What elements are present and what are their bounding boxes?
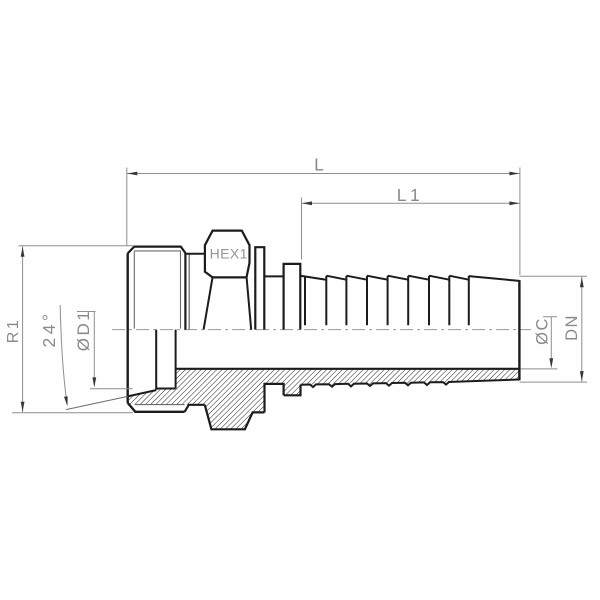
- svg-text:24°: 24°: [39, 311, 59, 348]
- svg-text:L: L: [314, 155, 324, 175]
- svg-text:ØD1: ØD1: [74, 309, 93, 351]
- svg-text:ØC: ØC: [534, 317, 552, 345]
- svg-text:L1: L1: [397, 185, 423, 205]
- svg-text:DN: DN: [563, 314, 581, 341]
- svg-text:HEX1: HEX1: [210, 246, 248, 262]
- svg-text:R1: R1: [5, 318, 22, 343]
